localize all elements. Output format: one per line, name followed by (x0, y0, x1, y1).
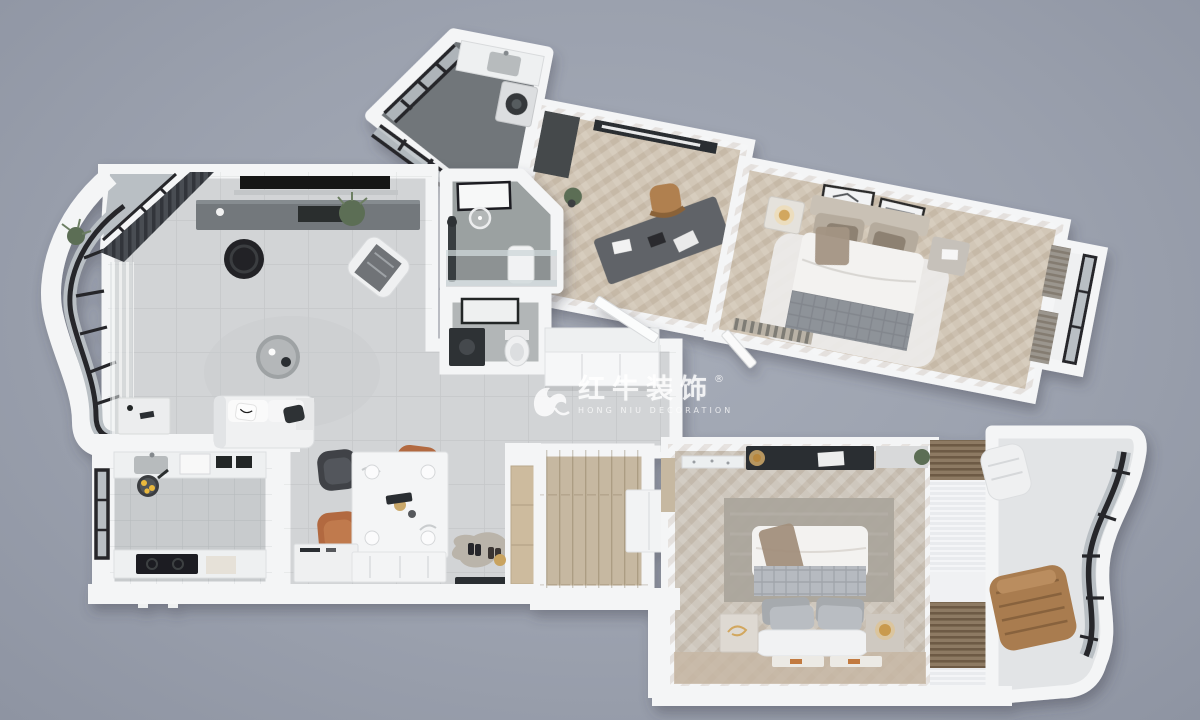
hallway-cabinets (545, 328, 659, 391)
master-nightstand-right (866, 614, 904, 652)
master-headboard (754, 630, 870, 656)
dining-table (352, 452, 448, 558)
cooktop (136, 554, 198, 574)
master-curtain-wall (930, 440, 990, 690)
bottom-wall-left (88, 584, 540, 604)
shower-fixture (447, 216, 457, 282)
black-pouf (224, 239, 264, 279)
master-tv-console (746, 446, 874, 470)
master-door-opening (661, 458, 675, 512)
shoe-cabinet (511, 466, 537, 584)
bedroom-2 (706, 163, 1105, 430)
kitchen (92, 434, 272, 596)
bedroom2-nightstand-right (927, 236, 971, 277)
bed-throw (815, 227, 850, 266)
step-wall (648, 598, 670, 698)
toilet (505, 330, 529, 366)
apartment-3d-floorplan (0, 0, 1200, 720)
master-balcony (978, 432, 1140, 698)
kitchen-sink (134, 456, 168, 474)
wall-nub-2 (168, 601, 178, 608)
side-cabinet (118, 398, 170, 434)
bottom-wall-right (652, 686, 1012, 706)
wall-nub-1 (138, 601, 148, 608)
entry-hall (540, 450, 672, 592)
cutting-board (206, 556, 236, 574)
ceiling-lamp (470, 208, 490, 228)
coffee-table (256, 335, 300, 379)
bedroom2-nightstand-left (764, 196, 805, 234)
master-side-cabinet (876, 446, 930, 468)
sofa (214, 396, 314, 448)
sideboard-1 (294, 544, 358, 582)
vanity (449, 328, 485, 366)
sideboard-2 (352, 552, 446, 582)
vanity-mirror (462, 299, 518, 323)
floating-shelf (682, 456, 744, 468)
microwave (180, 454, 210, 474)
master-bed (752, 522, 870, 656)
floor-vase (494, 554, 506, 566)
master-bedroom (661, 440, 990, 690)
kitchen-window (96, 470, 108, 558)
shower-glass-1 (446, 250, 557, 256)
balcony-lounger (987, 563, 1079, 654)
kitchen-counter-bottom (114, 550, 266, 578)
kitchen-counter-top (114, 452, 266, 478)
bathroom-toilet (446, 296, 545, 368)
tv-wall (234, 176, 398, 195)
floorplan-render-scene: 红牛装饰 ® HONG NIU DECORATION (0, 0, 1200, 720)
washing-machine (495, 81, 538, 127)
sofa-pillow-white (235, 403, 257, 422)
tv (240, 176, 390, 189)
bathroom-mirror (458, 182, 511, 210)
bathroom-shower (446, 175, 557, 287)
shower-glass-2 (446, 280, 557, 286)
master-nightstand-left (720, 614, 758, 652)
